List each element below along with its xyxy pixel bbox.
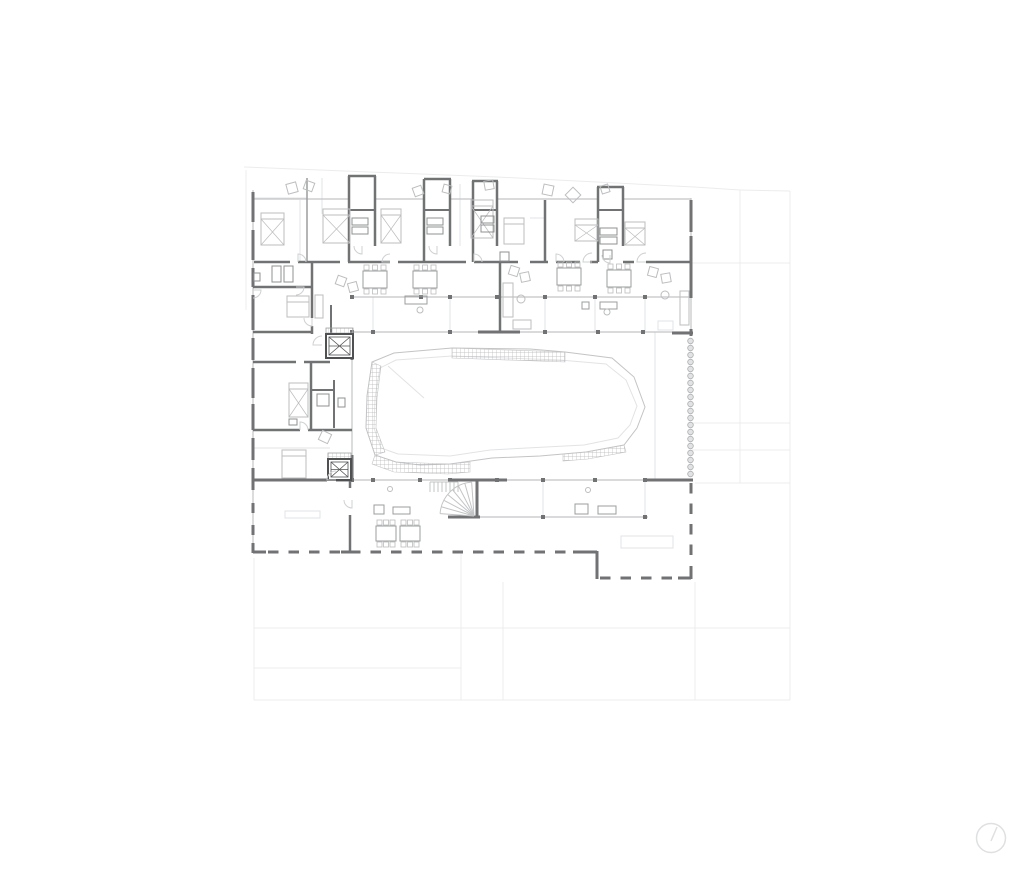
fan-stair (430, 482, 474, 516)
beds (261, 200, 645, 478)
plan-root (244, 167, 1006, 853)
courtyard-diagonal (388, 366, 424, 398)
courtyard-inner (374, 356, 637, 456)
floor-plan-page (0, 0, 1024, 875)
small-round-tables (388, 291, 670, 493)
courtyard-outline (366, 348, 645, 465)
walls-dashed (268, 483, 691, 578)
armchairs-deckchairs (286, 180, 671, 444)
walls-dark (253, 176, 693, 579)
clock-icon (977, 824, 1006, 853)
sofas (315, 283, 689, 329)
site-lines (244, 167, 790, 700)
courtyard-hatch-bands (366, 348, 626, 474)
columns (350, 295, 647, 519)
floor-plan (0, 0, 1024, 875)
dining-tables (363, 262, 631, 547)
facade-circles-row (688, 338, 694, 477)
